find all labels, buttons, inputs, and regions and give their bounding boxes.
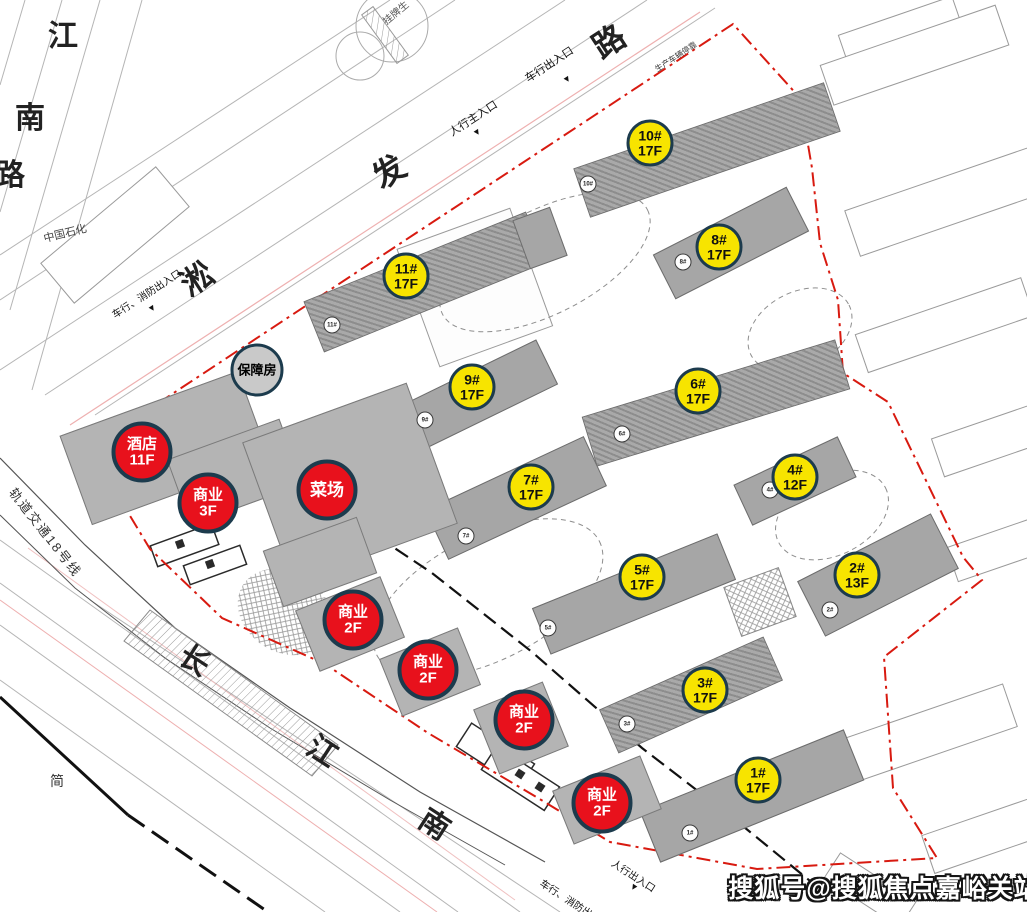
thick-black-dashed <box>128 815 268 912</box>
badge-number: 11# <box>395 261 418 276</box>
watermark: 搜狐号@搜狐焦点嘉峪关站 <box>728 869 1027 905</box>
road-jiangnan-char-2: 南 <box>15 93 45 137</box>
badge-floors: 11F <box>129 452 154 468</box>
slab-number-11: 11# <box>324 317 341 334</box>
badge-number: 4# <box>787 462 803 477</box>
site-plan-canvas: 10# 8# 11# 9# 6# 7# 4# 5# 2# 3# 1# 江 南 路… <box>0 0 1027 912</box>
badge-number: 2# <box>849 560 865 575</box>
badge-floors: 17F <box>707 247 731 262</box>
badge-label: 商业 <box>509 704 539 720</box>
slab-number-2: 2# <box>822 602 839 619</box>
badge-building-1: 1# 17F <box>735 757 782 804</box>
badge-number: 8# <box>711 232 727 247</box>
badge-commercial-3f: 商业 3F <box>178 473 239 534</box>
badge-number: 1# <box>750 765 766 780</box>
thick-black-line <box>0 697 128 815</box>
badge-floors: 2F <box>344 620 362 636</box>
slab-number-1: 1# <box>682 825 699 842</box>
badge-number: 3# <box>697 675 713 690</box>
badge-building-8: 8# 17F <box>696 224 743 271</box>
badge-commercial-2f-4: 商业 2F <box>572 773 633 834</box>
badge-number: 6# <box>690 376 706 391</box>
badge-building-6: 6# 17F <box>675 368 722 415</box>
badge-label: 酒店 <box>127 436 157 452</box>
slab-number-10: 10# <box>580 176 597 193</box>
badge-floors: 17F <box>746 780 770 795</box>
badge-building-7: 7# 17F <box>508 464 555 511</box>
badge-floors: 17F <box>693 690 717 705</box>
badge-commercial-2f-3: 商业 2F <box>494 690 555 751</box>
badge-building-3: 3# 17F <box>682 667 729 714</box>
badge-label: 保障房 <box>237 363 276 377</box>
slab-number-7: 7# <box>458 528 475 545</box>
badge-floors: 17F <box>519 487 543 502</box>
road-jiangnan-char-3: 路 <box>0 150 25 194</box>
badge-building-4: 4# 12F <box>772 454 819 501</box>
badge-floors: 2F <box>515 720 533 736</box>
badge-commercial-2f-2: 商业 2F <box>398 640 459 701</box>
badge-hotel: 酒店 11F <box>112 422 173 483</box>
badge-floors: 17F <box>460 387 484 402</box>
badge-floors: 12F <box>783 477 807 492</box>
badge-label: 商业 <box>338 604 368 620</box>
slab-number-3: 3# <box>619 716 636 733</box>
badge-number: 9# <box>464 372 480 387</box>
badge-building-9: 9# 17F <box>449 364 496 411</box>
badge-number: 5# <box>634 562 650 577</box>
badge-floors: 17F <box>630 577 654 592</box>
slab-number-8: 8# <box>675 254 692 271</box>
badge-floors: 2F <box>593 803 611 819</box>
badge-floors: 17F <box>638 143 662 158</box>
badge-label: 商业 <box>413 654 443 670</box>
jian-label: 简 <box>50 771 64 791</box>
badge-label: 商业 <box>193 487 223 503</box>
badge-market: 菜场 <box>297 460 358 521</box>
badge-floors: 17F <box>394 276 418 291</box>
badge-support-housing: 保障房 <box>231 344 284 397</box>
badge-number: 10# <box>638 128 661 143</box>
slab-number-9: 9# <box>417 412 434 429</box>
badge-floors: 13F <box>845 575 869 590</box>
badge-commercial-2f-1: 商业 2F <box>323 590 384 651</box>
slab-number-6: 6# <box>614 426 631 443</box>
badge-building-2: 2# 13F <box>834 552 881 599</box>
badge-number: 7# <box>523 472 539 487</box>
badge-building-5: 5# 17F <box>619 554 666 601</box>
slab-number-5: 5# <box>540 620 557 637</box>
road-jiangnan-char-1: 江 <box>48 11 78 55</box>
badge-label: 商业 <box>587 787 617 803</box>
badge-floors: 3F <box>199 503 217 519</box>
badge-floors: 2F <box>419 670 437 686</box>
badge-building-10: 10# 17F <box>627 120 674 167</box>
badge-floors: 17F <box>686 391 710 406</box>
jiangnan-road-lines <box>0 0 142 390</box>
badge-label: 菜场 <box>310 481 344 499</box>
badge-building-11: 11# 17F <box>383 253 430 300</box>
